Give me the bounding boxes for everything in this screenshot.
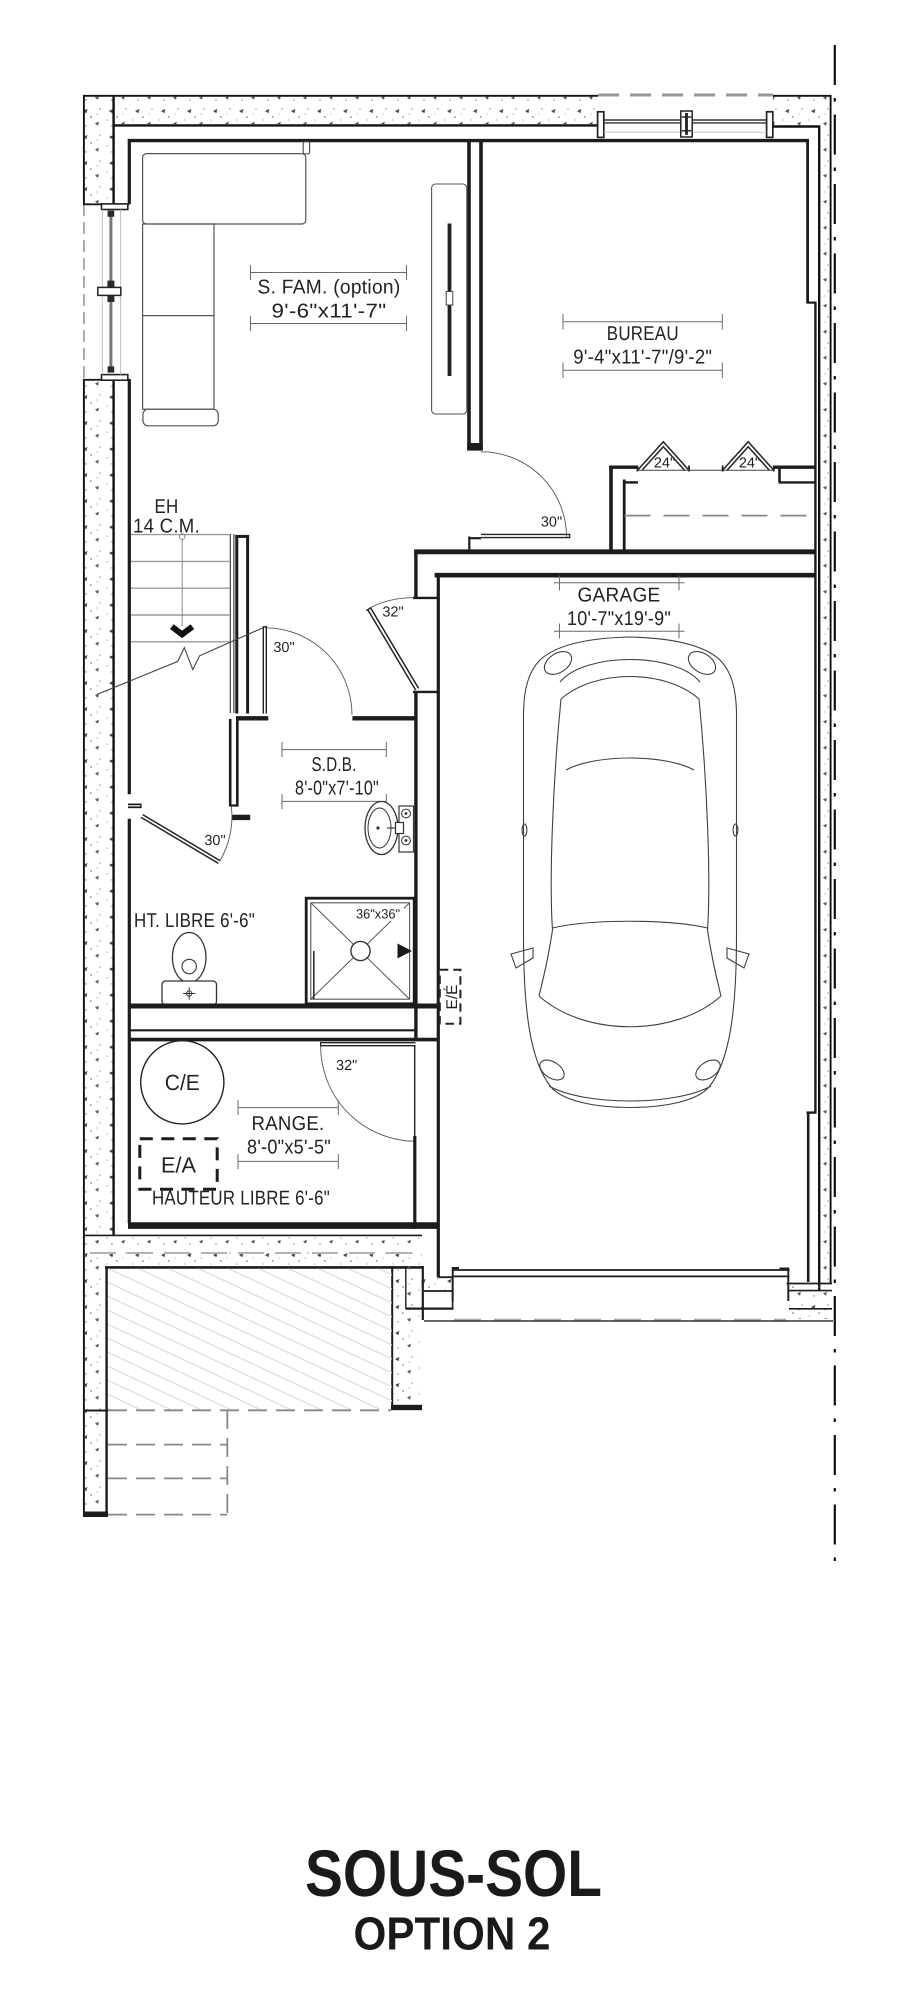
svg-text:24": 24" (654, 456, 675, 472)
svg-text:14 C.M.: 14 C.M. (133, 516, 200, 538)
svg-text:HAUTEUR LIBRE 6'-6": HAUTEUR LIBRE 6'-6" (152, 1188, 330, 1210)
svg-text:S. FAM. (option): S. FAM. (option) (258, 277, 401, 299)
svg-text:24": 24" (739, 456, 760, 472)
svg-text:SOUS-SOL: SOUS-SOL (305, 1836, 602, 1910)
svg-text:S.D.B.: S.D.B. (312, 754, 357, 776)
svg-text:9'-4"x11'-7"/9'-2": 9'-4"x11'-7"/9'-2" (573, 347, 712, 369)
svg-text:RANGE.: RANGE. (252, 1113, 325, 1135)
svg-text:30": 30" (204, 833, 225, 849)
svg-text:E/É: E/É (443, 985, 461, 1010)
svg-text:GARAGE: GARAGE (578, 585, 661, 607)
svg-text:32": 32" (336, 1058, 357, 1074)
svg-text:30": 30" (541, 515, 562, 531)
svg-text:9'-6"x11'-7": 9'-6"x11'-7" (272, 301, 387, 323)
svg-text:8'-0"x7'-10": 8'-0"x7'-10" (295, 778, 379, 800)
svg-text:E/A: E/A (161, 1152, 196, 1177)
svg-text:32": 32" (382, 605, 403, 621)
svg-text:10'-7"x19'-9": 10'-7"x19'-9" (567, 608, 671, 630)
svg-text:36"x36": 36"x36" (356, 907, 400, 922)
svg-text:8'-0"x5'-5": 8'-0"x5'-5" (247, 1137, 331, 1159)
svg-text:C/E: C/E (165, 1070, 200, 1095)
svg-text:HT. LIBRE 6'-6": HT. LIBRE 6'-6" (134, 910, 255, 932)
svg-text:BUREAU: BUREAU (607, 323, 679, 345)
svg-text:OPTION 2: OPTION 2 (354, 1908, 551, 1960)
svg-text:30": 30" (273, 640, 294, 656)
